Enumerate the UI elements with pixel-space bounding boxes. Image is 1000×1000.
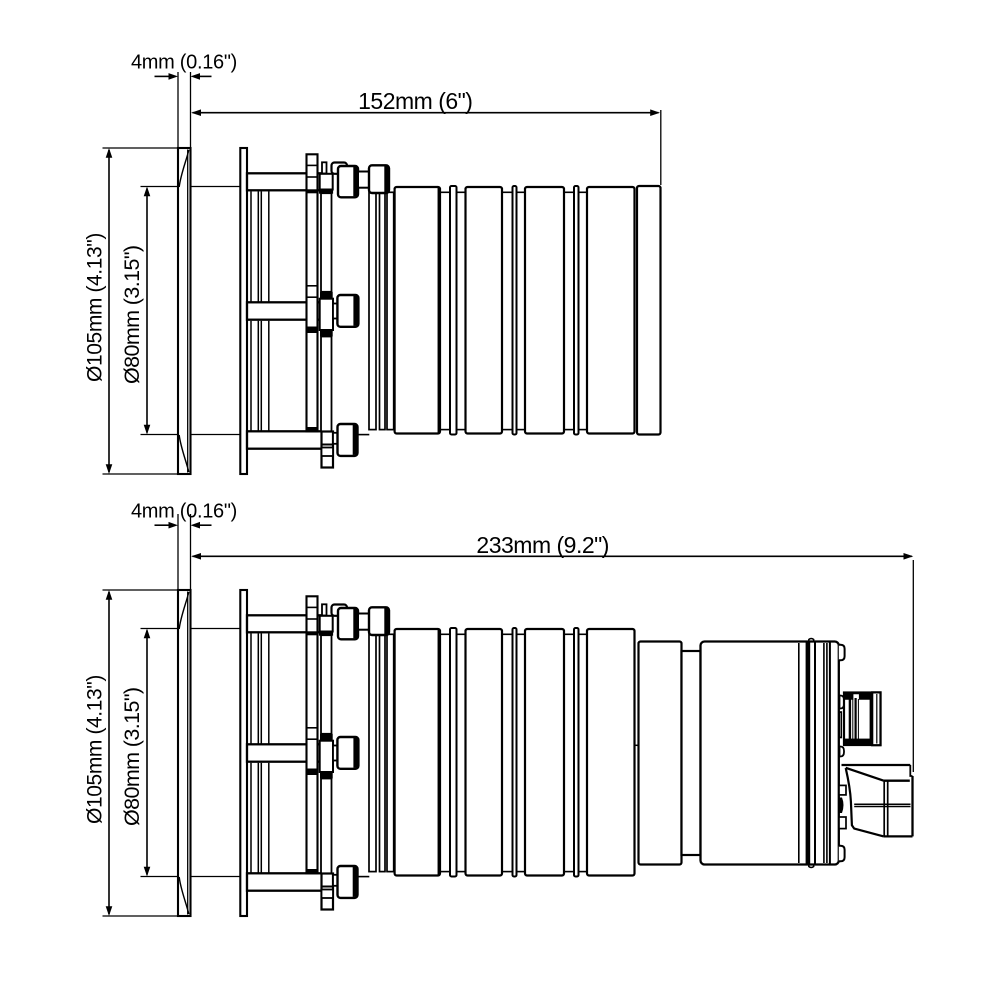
svg-text:152mm (6"): 152mm (6") bbox=[358, 88, 472, 114]
svg-text:4mm (0.16"): 4mm (0.16") bbox=[131, 501, 237, 523]
svg-text:233mm (9.2"): 233mm (9.2") bbox=[476, 532, 609, 558]
svg-text:4mm (0.16"): 4mm (0.16") bbox=[131, 52, 237, 74]
